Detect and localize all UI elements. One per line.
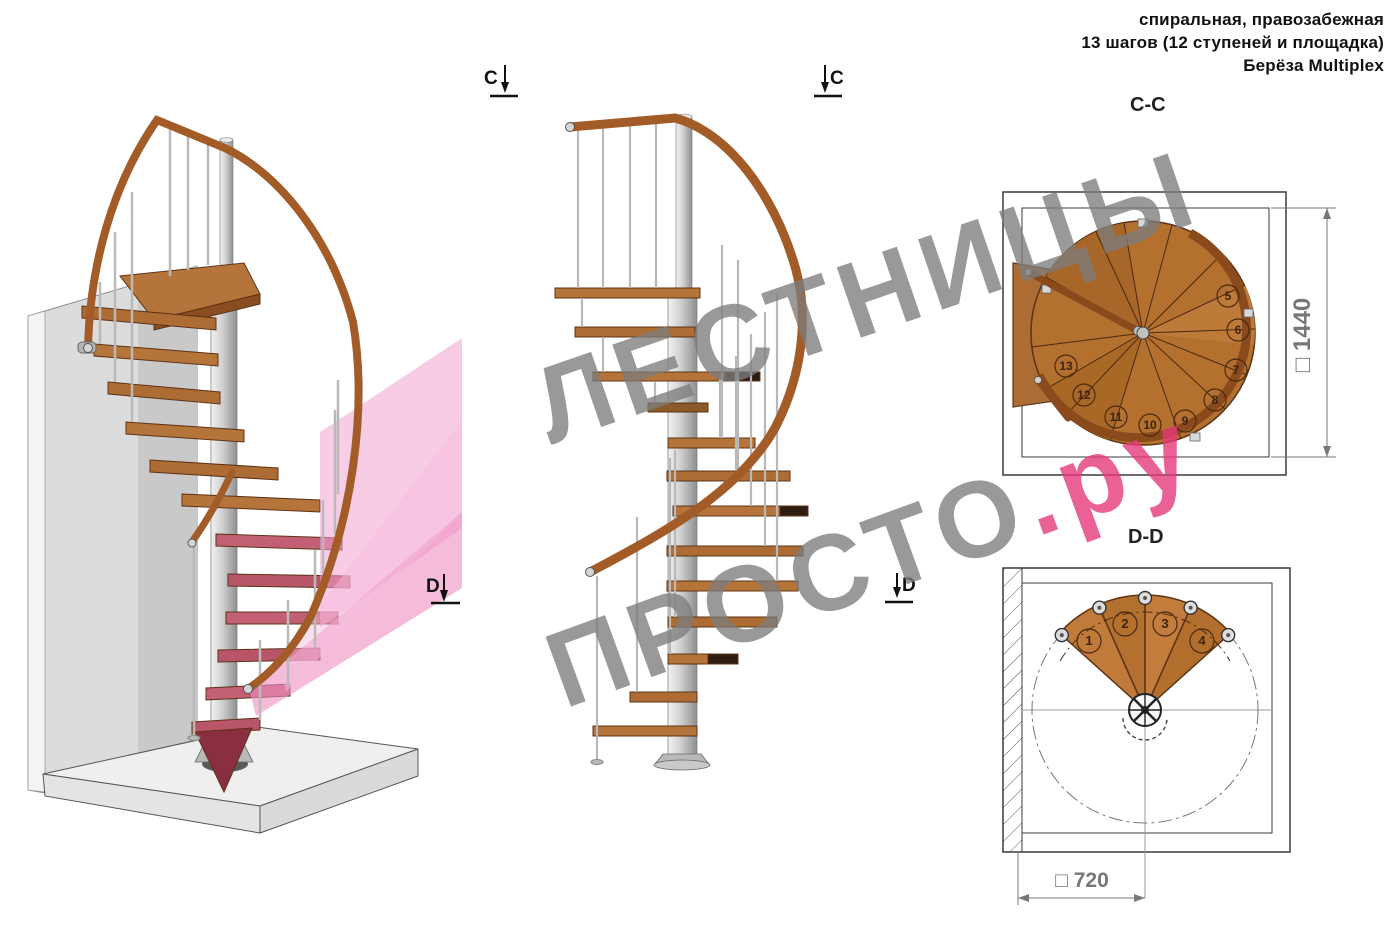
svg-text:10: 10 (1143, 418, 1157, 432)
section-letter-c: C (830, 68, 844, 89)
svg-text:1: 1 (1085, 633, 1092, 648)
svg-text:11: 11 (1110, 410, 1123, 424)
section-marker-c-left: C (484, 65, 518, 96)
section-marker-c-right: C (814, 65, 844, 96)
center-column (195, 138, 253, 763)
section-letter-d: D (902, 575, 916, 596)
title-block: спиральная, правозабежная 13 шагов (12 с… (1081, 8, 1384, 77)
cc-dim-label: □ 1440 (1289, 298, 1316, 373)
svg-text:2: 2 (1121, 616, 1128, 631)
svg-text:6: 6 (1235, 323, 1242, 337)
svg-text:12: 12 (1077, 388, 1091, 402)
svg-text:8: 8 (1212, 393, 1219, 407)
section-letter-c: C (484, 68, 498, 89)
plan-dd: D-D (990, 515, 1390, 940)
svg-text:3: 3 (1161, 616, 1168, 631)
section-marker-d-elevation: D (885, 573, 916, 602)
title-line-material: Берёза Multiplex (1081, 54, 1384, 77)
plan-cc: C-C (990, 85, 1390, 485)
title-line-steps: 13 шагов (12 ступеней и площадка) (1081, 31, 1384, 54)
svg-text:7: 7 (1233, 363, 1240, 377)
cc-dimension-1440: □ 1440 (1271, 208, 1336, 457)
elevation-view: C C (470, 60, 940, 780)
dd-dimension-720: □ 720 (1018, 852, 1145, 905)
svg-text:13: 13 (1059, 359, 1073, 373)
svg-text:9: 9 (1182, 414, 1189, 428)
cc-stair-circle (1025, 219, 1256, 445)
section-letter-d: D (426, 576, 440, 597)
plan-dd-title: D-D (1128, 526, 1164, 548)
dd-dim-label: □ 720 (1055, 869, 1109, 892)
svg-text:5: 5 (1225, 289, 1232, 303)
drawing-sheet: спиральная, правозабежная 13 шагов (12 с… (0, 0, 1400, 940)
svg-text:4: 4 (1198, 633, 1206, 648)
dd-wall-hatch (1003, 568, 1022, 852)
plan-cc-title: C-C (1130, 94, 1166, 116)
title-line-type: спиральная, правозабежная (1081, 8, 1384, 31)
3d-view: D (20, 80, 470, 870)
